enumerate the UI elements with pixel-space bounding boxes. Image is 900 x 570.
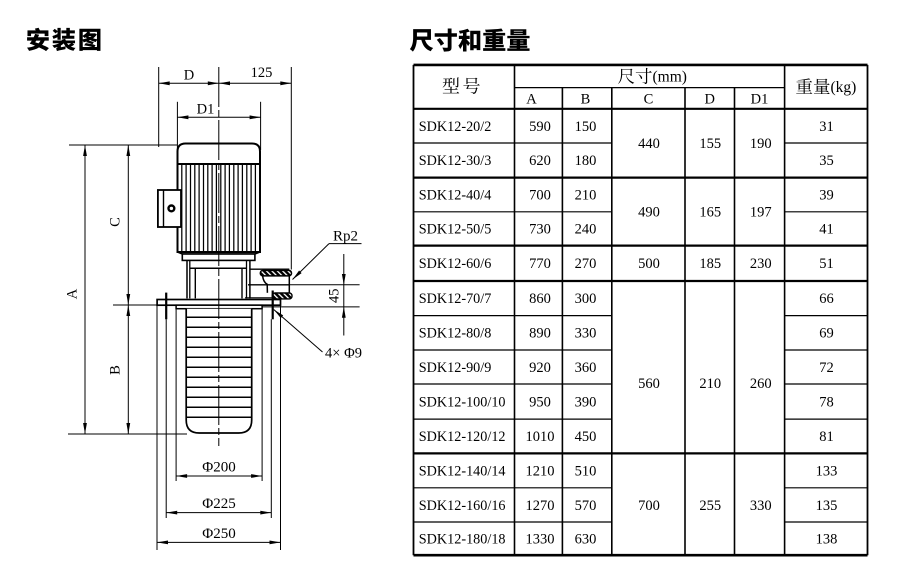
svg-text:A: A — [65, 288, 81, 299]
svg-text:39: 39 — [819, 188, 834, 204]
svg-text:330: 330 — [575, 326, 597, 342]
svg-text:SDK12-160/16: SDK12-160/16 — [419, 498, 506, 514]
svg-text:(mm): (mm) — [653, 69, 687, 86]
svg-text:SDK12-30/3: SDK12-30/3 — [419, 153, 492, 169]
svg-text:SDK12-90/9: SDK12-90/9 — [419, 360, 492, 376]
svg-text:SDK12-120/12: SDK12-120/12 — [419, 429, 506, 445]
svg-text:300: 300 — [575, 291, 597, 307]
svg-text:D: D — [704, 91, 714, 107]
svg-text:570: 570 — [575, 498, 597, 514]
svg-text:185: 185 — [699, 256, 721, 272]
svg-text:230: 230 — [750, 256, 772, 272]
svg-text:69: 69 — [819, 326, 834, 342]
svg-text:360: 360 — [575, 360, 597, 376]
svg-text:A: A — [526, 92, 537, 108]
svg-text:B: B — [581, 91, 591, 107]
svg-text:SDK12-40/4: SDK12-40/4 — [419, 188, 492, 204]
svg-text:51: 51 — [819, 256, 834, 272]
svg-text:81: 81 — [819, 429, 834, 445]
svg-text:72: 72 — [819, 360, 834, 376]
svg-text:SDK12-60/6: SDK12-60/6 — [419, 256, 492, 272]
svg-text:C: C — [108, 217, 124, 227]
svg-text:SDK12-70/7: SDK12-70/7 — [419, 291, 492, 307]
svg-text:197: 197 — [750, 205, 772, 221]
svg-text:Φ250: Φ250 — [202, 526, 235, 542]
svg-text:78: 78 — [819, 394, 834, 410]
svg-text:B: B — [108, 365, 124, 375]
svg-text:260: 260 — [750, 376, 772, 392]
svg-text:210: 210 — [575, 188, 597, 204]
svg-text:620: 620 — [529, 153, 551, 169]
svg-text:700: 700 — [638, 498, 660, 514]
svg-text:270: 270 — [575, 256, 597, 272]
svg-text:35: 35 — [819, 153, 834, 169]
svg-text:SDK12-50/5: SDK12-50/5 — [419, 222, 492, 238]
svg-text:150: 150 — [575, 119, 597, 135]
svg-text:450: 450 — [575, 429, 597, 445]
svg-text:155: 155 — [699, 136, 721, 152]
svg-text:133: 133 — [816, 464, 838, 480]
svg-text:210: 210 — [699, 376, 721, 392]
svg-text:1330: 1330 — [526, 532, 555, 548]
svg-text:125: 125 — [251, 65, 273, 81]
svg-text:510: 510 — [575, 464, 597, 480]
svg-text:SDK12-140/14: SDK12-140/14 — [419, 464, 506, 480]
svg-text:Φ225: Φ225 — [202, 496, 235, 512]
svg-text:D1: D1 — [751, 91, 769, 107]
svg-text:Rp2: Rp2 — [333, 229, 358, 245]
svg-text:180: 180 — [575, 153, 597, 169]
svg-text:165: 165 — [699, 205, 721, 221]
svg-text:1210: 1210 — [526, 464, 555, 480]
svg-text:440: 440 — [638, 136, 660, 152]
svg-text:66: 66 — [819, 291, 834, 307]
svg-text:770: 770 — [529, 256, 551, 272]
svg-text:700: 700 — [529, 188, 551, 204]
svg-text:490: 490 — [638, 205, 660, 221]
svg-text:135: 135 — [816, 498, 838, 514]
svg-text:560: 560 — [638, 376, 660, 392]
svg-text:Φ200: Φ200 — [202, 460, 235, 476]
svg-text:45: 45 — [327, 289, 343, 304]
svg-text:4× Φ9: 4× Φ9 — [325, 346, 362, 362]
svg-text:255: 255 — [699, 498, 721, 514]
svg-text:390: 390 — [575, 394, 597, 410]
svg-text:31: 31 — [819, 119, 834, 135]
svg-text:D1: D1 — [197, 101, 215, 117]
svg-text:630: 630 — [575, 532, 597, 548]
svg-text:SDK12-100/10: SDK12-100/10 — [419, 394, 506, 410]
svg-text:330: 330 — [750, 498, 772, 514]
svg-text:SDK12-80/8: SDK12-80/8 — [419, 326, 492, 342]
svg-text:500: 500 — [638, 256, 660, 272]
svg-text:SDK12-180/18: SDK12-180/18 — [419, 532, 506, 548]
svg-text:138: 138 — [816, 532, 838, 548]
svg-text:D: D — [184, 68, 194, 84]
svg-text:41: 41 — [819, 222, 834, 238]
svg-text:190: 190 — [750, 136, 772, 152]
svg-text:890: 890 — [529, 326, 551, 342]
svg-text:860: 860 — [529, 291, 551, 307]
svg-text:C: C — [644, 91, 654, 107]
svg-text:920: 920 — [529, 360, 551, 376]
svg-text:SDK12-20/2: SDK12-20/2 — [419, 119, 492, 135]
svg-text:950: 950 — [529, 394, 551, 410]
svg-text:(kg): (kg) — [831, 79, 857, 96]
svg-text:590: 590 — [529, 119, 551, 135]
svg-text:240: 240 — [575, 222, 597, 238]
svg-text:730: 730 — [529, 222, 551, 238]
svg-text:1270: 1270 — [526, 498, 555, 514]
svg-text:1010: 1010 — [526, 429, 555, 445]
